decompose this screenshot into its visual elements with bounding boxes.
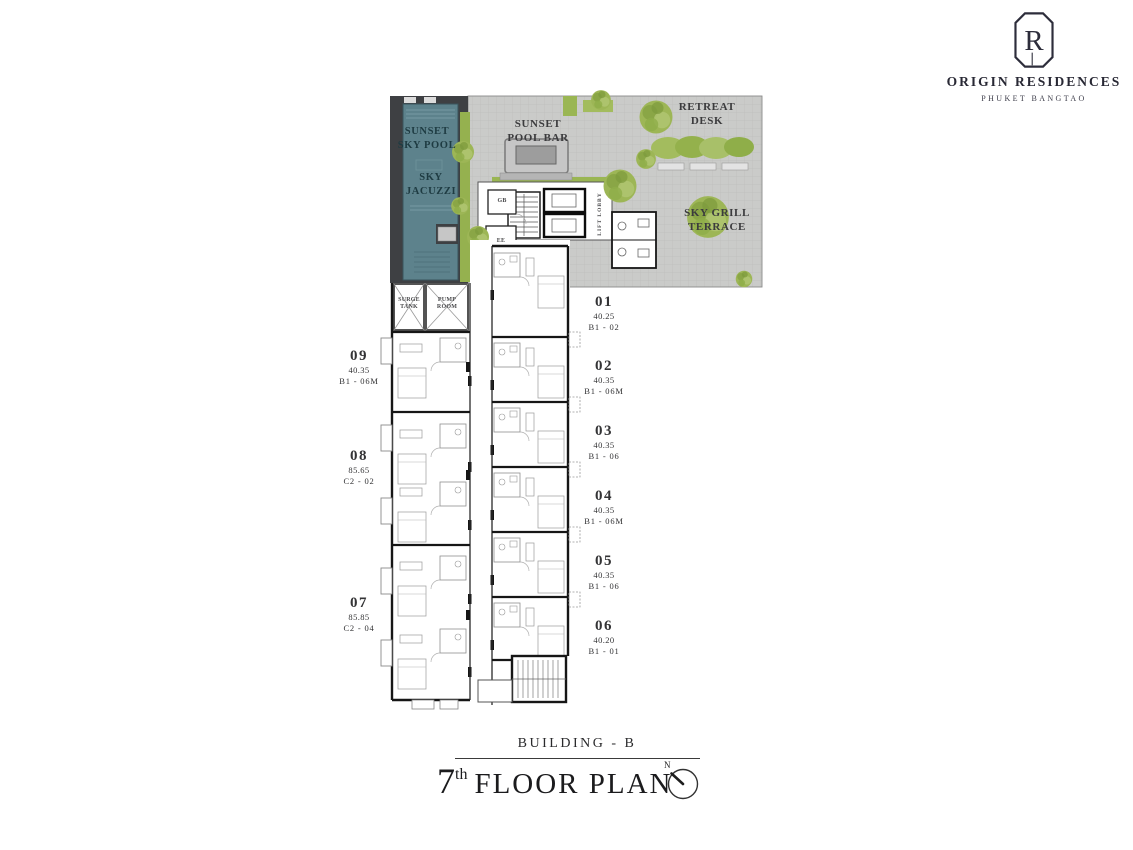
label-room-gb: GB (497, 198, 506, 205)
label-lift-lobby: LIFT LOBBY (597, 192, 603, 235)
unit-area: 40.35 (588, 440, 619, 451)
label-sky-jacuzzi: SKY JACUZZI (406, 171, 456, 198)
floor-number: 7 (437, 761, 455, 801)
unit-number: 08 (343, 448, 374, 465)
unit-label-08: 08 85.65 C2 - 02 (343, 448, 374, 487)
unit-number: 02 (584, 358, 623, 375)
label-pump-room: PUMP ROOM (437, 297, 457, 311)
unit-type: B1 - 02 (588, 322, 619, 333)
unit-area: 40.35 (584, 505, 623, 516)
unit-type: B1 - 06 (588, 451, 619, 462)
unit-label-02: 02 40.35 B1 - 06M (584, 358, 623, 397)
label-retreat-desk: RETREAT DESK (679, 100, 736, 129)
floor-ordinal: th (455, 766, 467, 783)
unit-number: 04 (584, 488, 623, 505)
unit-type: B1 - 06 (588, 581, 619, 592)
unit-area: 40.35 (339, 365, 378, 376)
toilet-block (612, 212, 656, 268)
lift-shafts (544, 189, 585, 237)
label-sunset-pool-bar: SUNSET POOL BAR (507, 117, 568, 146)
unit-number: 01 (588, 294, 619, 311)
unit-number: 03 (588, 423, 619, 440)
unit-number: 09 (339, 348, 378, 365)
brand-emblem-icon: R (1014, 12, 1054, 68)
unit-number: 05 (588, 553, 619, 570)
unit-area: 40.35 (584, 375, 623, 386)
unit-number: 07 (343, 595, 374, 612)
brand-location: PHUKET BANGTAO (934, 94, 1133, 103)
north-compass-icon: N (655, 754, 705, 806)
unit-label-06: 06 40.20 B1 - 01 (588, 618, 619, 657)
unit-label-01: 01 40.25 B1 - 02 (588, 294, 619, 333)
unit-area: 40.35 (588, 570, 619, 581)
unit-area: 85.65 (343, 465, 374, 476)
brand-initial: R (1024, 25, 1044, 57)
unit-type: B1 - 06M (584, 386, 623, 397)
unit-label-07: 07 85.85 C2 - 04 (343, 595, 374, 634)
label-sky-grill-terrace: SKY GRILL TERRACE (684, 206, 750, 235)
page: SUNSET SKY POOL SKY JACUZZI SUNSET POOL … (0, 0, 1133, 850)
unit-type: C2 - 02 (343, 476, 374, 487)
unit-area: 40.25 (588, 311, 619, 322)
unit-label-04: 04 40.35 B1 - 06M (584, 488, 623, 527)
unit-number: 06 (588, 618, 619, 635)
brand-name: ORIGIN RESIDENCES (934, 74, 1133, 90)
unit-area: 40.20 (588, 635, 619, 646)
compass-north-label: N (664, 760, 671, 770)
label-sunset-sky-pool: SUNSET SKY POOL (398, 125, 456, 152)
unit-type: B1 - 06M (339, 376, 378, 387)
unit-type: B1 - 06M (584, 516, 623, 527)
hedge-row (651, 136, 754, 170)
brand-logo: R ORIGIN RESIDENCES PHUKET BANGTAO (934, 12, 1133, 103)
unit-type: B1 - 01 (588, 646, 619, 657)
label-room-ee: EE (497, 238, 505, 245)
unit-label-09: 09 40.35 B1 - 06M (339, 348, 378, 387)
floor-text: FLOOR PLAN (474, 768, 672, 800)
unit-label-05: 05 40.35 B1 - 06 (588, 553, 619, 592)
unit-area: 85.85 (343, 612, 374, 623)
building-title: BUILDING - B (518, 736, 637, 752)
label-surge-tank: SURGE TANK (398, 297, 420, 311)
floor-plan-title: 7thFLOOR PLAN (437, 760, 673, 802)
unit-type: C2 - 04 (343, 623, 374, 634)
unit-label-03: 03 40.35 B1 - 06 (588, 423, 619, 462)
